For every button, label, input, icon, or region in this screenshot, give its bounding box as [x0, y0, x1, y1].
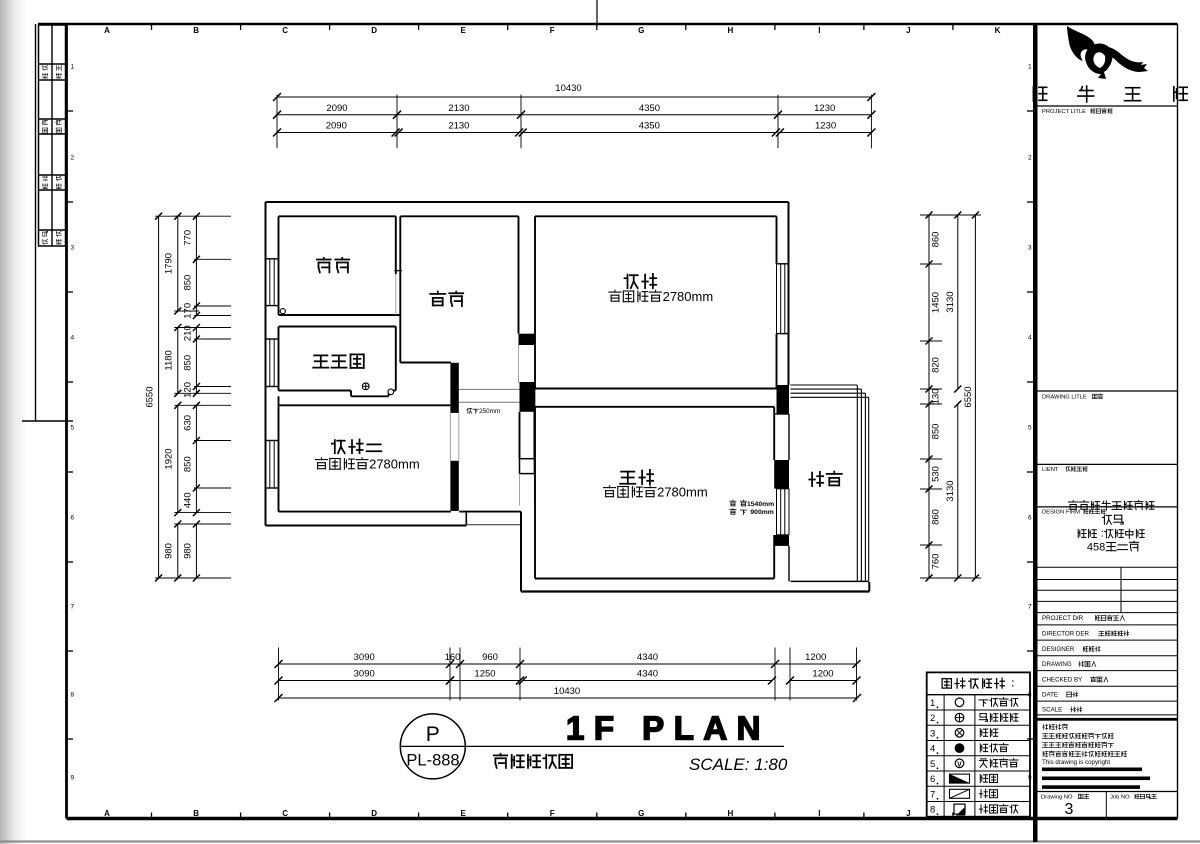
svg-text:PL-888: PL-888	[406, 752, 459, 770]
svg-text:3090: 3090	[354, 669, 375, 680]
svg-text:860: 860	[931, 232, 942, 248]
svg-text:1540mm: 1540mm	[747, 501, 774, 508]
svg-text:130: 130	[931, 389, 942, 405]
svg-text:2: 2	[1028, 155, 1032, 162]
svg-text:G: G	[638, 809, 644, 818]
svg-text:458: 458	[1087, 542, 1105, 554]
svg-text:SCALE: 1:80: SCALE: 1:80	[689, 755, 788, 774]
svg-text:770: 770	[183, 230, 194, 246]
svg-text:2: 2	[930, 713, 935, 724]
svg-text:3: 3	[1065, 801, 1074, 818]
svg-text:4350: 4350	[639, 103, 660, 114]
svg-text:4350: 4350	[639, 121, 660, 132]
svg-text:4340: 4340	[637, 669, 658, 680]
svg-text:CHECKED BY: CHECKED BY	[1042, 677, 1082, 684]
svg-text:1: 1	[1028, 64, 1032, 71]
svg-text:6550: 6550	[144, 387, 155, 408]
svg-text:3130: 3130	[945, 291, 956, 312]
svg-text:8: 8	[930, 805, 935, 816]
svg-text:This drawing is copyright: This drawing is copyright	[1042, 759, 1110, 766]
svg-text:850: 850	[183, 275, 194, 291]
svg-text:H: H	[728, 809, 734, 818]
svg-text:5: 5	[71, 425, 75, 432]
svg-text:I: I	[818, 26, 820, 35]
svg-text:I: I	[818, 809, 820, 818]
svg-text:8: 8	[71, 692, 75, 699]
svg-text:9: 9	[71, 775, 75, 782]
svg-text:D: D	[371, 809, 377, 818]
svg-text:7: 7	[71, 604, 75, 611]
svg-text:850: 850	[183, 355, 194, 371]
svg-text:6550: 6550	[963, 386, 974, 407]
svg-text:2780mm: 2780mm	[369, 457, 420, 472]
svg-text:2: 2	[71, 155, 75, 162]
svg-text:6: 6	[1028, 515, 1032, 522]
svg-text:7: 7	[930, 789, 935, 800]
svg-text:B: B	[193, 26, 199, 35]
svg-text:DIRECTOR DER: DIRECTOR DER	[1042, 631, 1090, 638]
svg-text:4: 4	[71, 335, 75, 342]
svg-text:Job NO: Job NO	[1110, 795, 1130, 801]
svg-text:1: 1	[71, 64, 75, 71]
svg-text:3: 3	[930, 728, 935, 739]
svg-text:2130: 2130	[448, 103, 469, 114]
svg-text:3: 3	[1028, 245, 1032, 252]
svg-text:PROJECT DIR: PROJECT DIR	[1042, 615, 1084, 622]
svg-text:1200: 1200	[805, 652, 826, 663]
svg-text:F: F	[550, 809, 555, 818]
svg-text:DESIGN FIRM: DESIGN FIRM	[1042, 510, 1080, 516]
svg-text:DRAWING: DRAWING	[1042, 661, 1072, 668]
svg-text:E: E	[461, 809, 467, 818]
svg-text:D: D	[371, 26, 377, 35]
svg-text:7: 7	[1028, 604, 1032, 611]
svg-text:E: E	[461, 26, 467, 35]
svg-text:A: A	[104, 26, 110, 35]
svg-text:1230: 1230	[814, 103, 835, 114]
svg-text:1: 1	[930, 698, 935, 709]
svg-text:G: G	[638, 26, 644, 35]
svg-text:850: 850	[931, 424, 942, 440]
svg-text:160: 160	[445, 652, 461, 663]
svg-text:10430: 10430	[555, 83, 581, 94]
svg-text:760: 760	[931, 554, 942, 570]
svg-text:980: 980	[183, 543, 194, 559]
svg-text:5: 5	[930, 759, 935, 770]
svg-text:1230: 1230	[815, 121, 836, 132]
svg-text:6: 6	[71, 515, 75, 522]
svg-text:DATE: DATE	[1042, 692, 1058, 699]
svg-text:V: V	[957, 761, 962, 768]
svg-text:2780mm: 2780mm	[657, 485, 708, 500]
svg-text:H: H	[728, 26, 734, 35]
svg-text:820: 820	[931, 357, 942, 373]
svg-text:4: 4	[1028, 335, 1032, 342]
svg-text:1920: 1920	[164, 448, 175, 469]
svg-text:3: 3	[71, 245, 75, 252]
svg-text:PROJECT LITLE: PROJECT LITLE	[1042, 109, 1086, 115]
svg-text:C: C	[282, 26, 288, 35]
svg-text:1F PLAN: 1F PLAN	[566, 710, 770, 747]
svg-text:B: B	[193, 809, 199, 818]
svg-text:250mm: 250mm	[479, 408, 500, 415]
svg-text:F: F	[550, 26, 555, 35]
svg-text:A: A	[104, 809, 110, 818]
svg-text:4: 4	[930, 744, 935, 755]
svg-text:1200: 1200	[812, 669, 833, 680]
svg-text:850: 850	[183, 456, 194, 472]
svg-text:10430: 10430	[554, 686, 580, 697]
svg-text:P: P	[426, 723, 440, 746]
svg-text:6: 6	[930, 774, 935, 785]
svg-text:2780mm: 2780mm	[663, 289, 714, 304]
svg-text:K: K	[995, 26, 1001, 35]
svg-text:1250: 1250	[474, 669, 495, 680]
svg-text:3130: 3130	[945, 480, 956, 501]
svg-text:Drawing NO: Drawing NO	[1041, 795, 1073, 801]
svg-text:C: C	[282, 809, 288, 818]
svg-text:4340: 4340	[637, 652, 658, 663]
svg-text:980: 980	[164, 543, 175, 559]
svg-text:530: 530	[931, 466, 942, 482]
svg-text:DRAWING LITLE: DRAWING LITLE	[1042, 395, 1087, 401]
svg-text:630: 630	[183, 415, 194, 431]
svg-text:900mm: 900mm	[750, 509, 773, 516]
svg-text:120: 120	[183, 382, 194, 398]
svg-text:LIENT: LIENT	[1042, 467, 1059, 473]
svg-text:J: J	[906, 26, 910, 35]
svg-text:2090: 2090	[326, 121, 347, 132]
svg-text:1450: 1450	[931, 292, 942, 313]
svg-text:2130: 2130	[448, 121, 469, 132]
svg-text:2090: 2090	[326, 103, 347, 114]
svg-text:440: 440	[183, 492, 194, 508]
svg-text:DESIGNER: DESIGNER	[1042, 646, 1075, 653]
svg-text:SCALE: SCALE	[1042, 707, 1062, 714]
svg-text:J: J	[906, 809, 910, 818]
svg-text:860: 860	[931, 509, 942, 525]
svg-text:3090: 3090	[354, 652, 375, 663]
svg-text:960: 960	[482, 652, 498, 663]
svg-text:1180: 1180	[164, 350, 175, 370]
svg-text:1790: 1790	[164, 253, 175, 274]
svg-text:5: 5	[1028, 425, 1032, 432]
